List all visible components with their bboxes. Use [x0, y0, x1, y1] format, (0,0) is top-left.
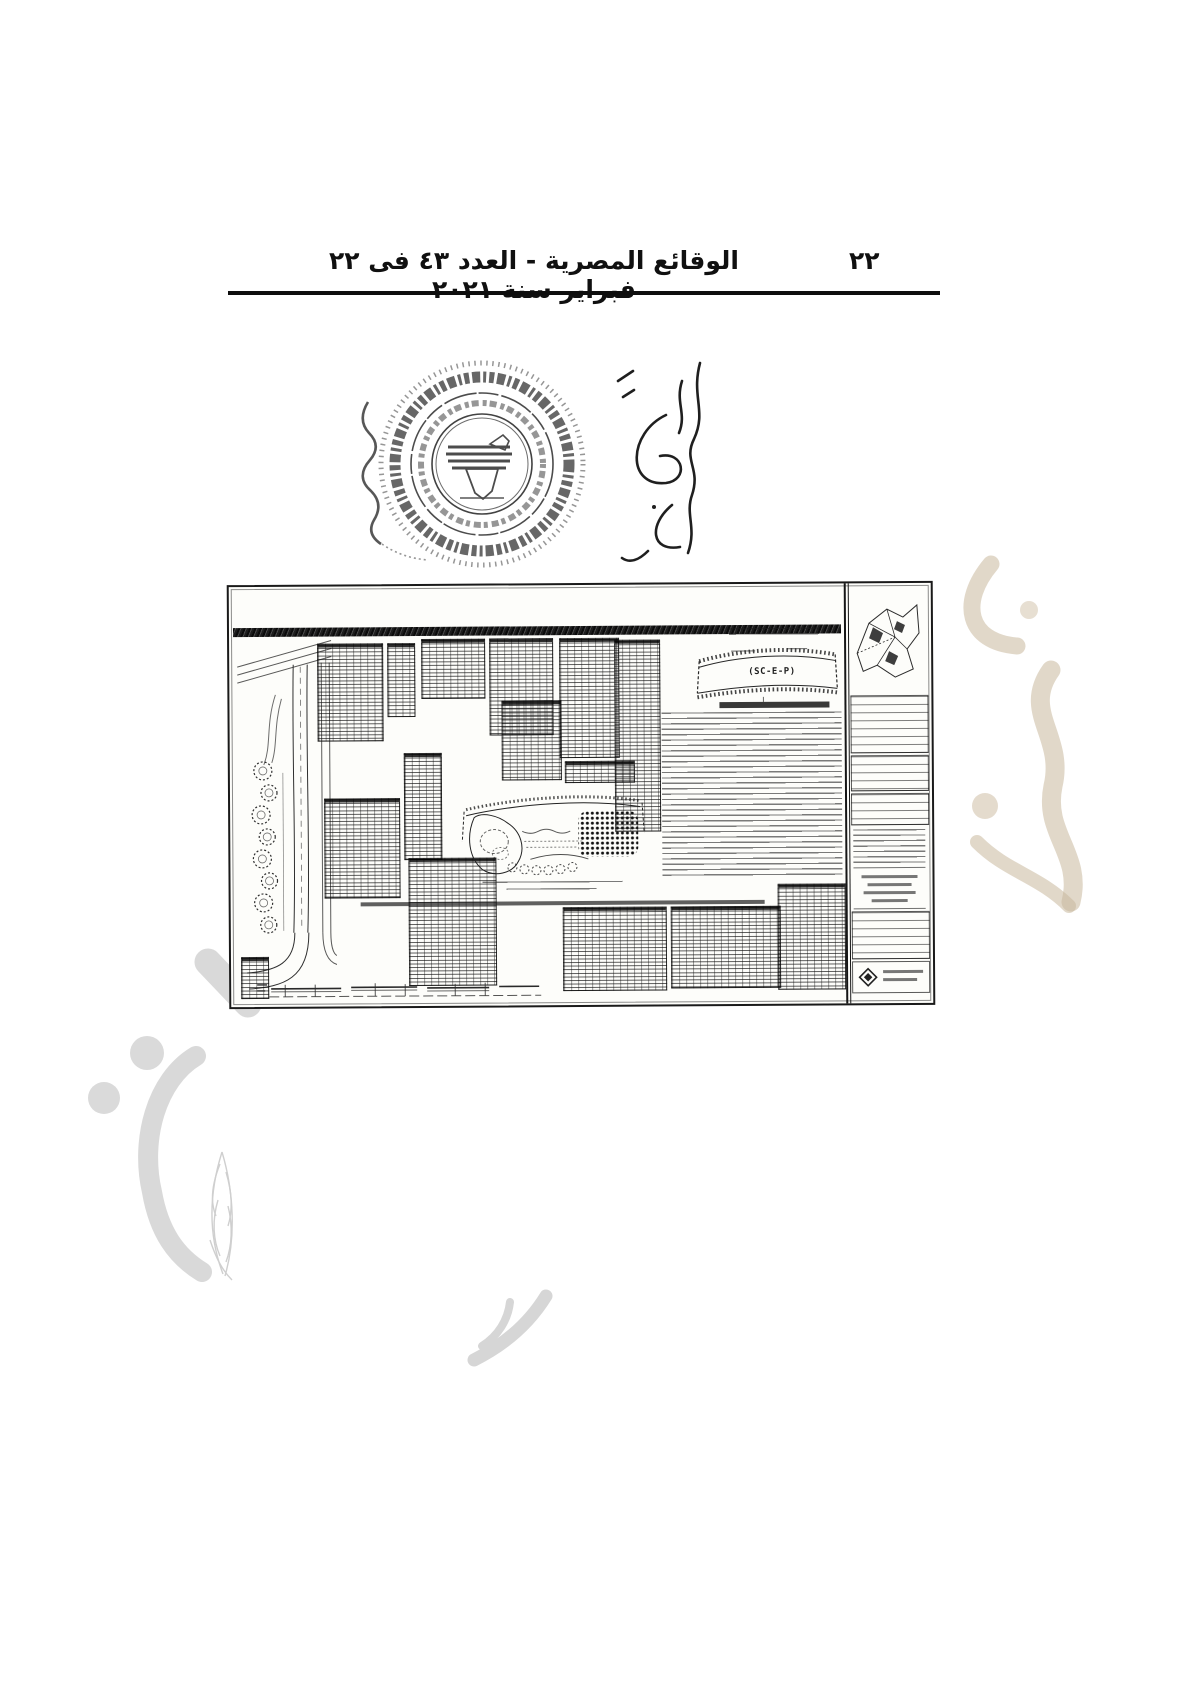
- title-block-rows: [852, 911, 930, 959]
- plot-caption-lines: [729, 628, 819, 638]
- calligraphy-watermark-icon: [933, 550, 1103, 930]
- header-rule: [228, 291, 940, 295]
- conditions-heading: [719, 701, 829, 708]
- data-table-block: [559, 638, 620, 758]
- owner-block: [853, 867, 925, 909]
- conditions-text-block: [661, 711, 842, 878]
- gazette-header-title: الوقائع المصرية - العدد ٤٣ فى ٢٢ فبراير …: [303, 246, 765, 304]
- data-table-block: [317, 643, 384, 741]
- data-table-block: [501, 700, 561, 780]
- plot-label: (SC-E-P): [748, 667, 795, 677]
- page-number: ٢٢: [849, 246, 880, 275]
- data-table-block: [324, 798, 401, 898]
- title-block-text: [853, 829, 925, 863]
- signature-icon: [588, 355, 718, 570]
- site-plan-caption: [483, 881, 623, 886]
- key-map-drawing: [849, 591, 928, 691]
- data-table-block: [421, 639, 485, 699]
- eagle-emblem: [446, 435, 512, 499]
- official-stamp-icon: [338, 348, 612, 580]
- data-table-block: [387, 643, 415, 717]
- gazette-scanned-page: الوقائع المصرية - العدد ٤٣ فى ٢٢ فبراير …: [0, 0, 1190, 1683]
- site-plan-drawing: [460, 781, 646, 878]
- data-table-block: [778, 883, 847, 989]
- data-table-block: [563, 906, 668, 991]
- title-block-table: [851, 755, 929, 791]
- flourish-watermark-icon: [448, 1286, 568, 1371]
- map-sheet: (SC-E-P): [227, 581, 936, 1009]
- title-block-table: [851, 793, 929, 825]
- title-block-table: [850, 695, 928, 753]
- data-table-block: [671, 906, 781, 989]
- diamond-logo-icon: [857, 966, 879, 988]
- site-plan-caption: [507, 888, 597, 893]
- plot-sc-e-p: (SC-E-P): [691, 640, 841, 704]
- cross-section-strip: [255, 977, 547, 1003]
- logo-row: [852, 961, 930, 993]
- data-table-block: [404, 753, 443, 860]
